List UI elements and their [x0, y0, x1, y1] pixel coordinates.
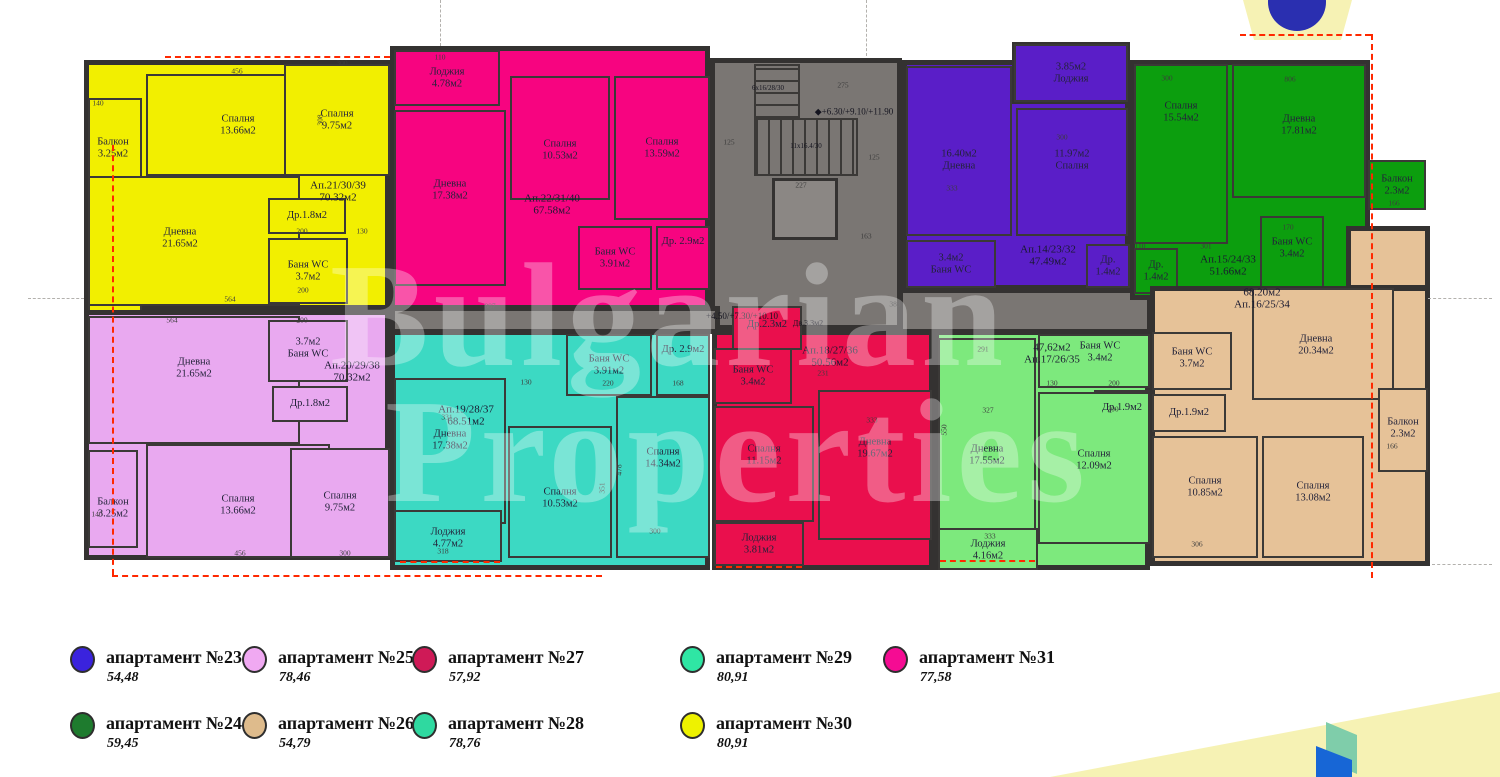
label-line: Баня WC	[288, 348, 329, 360]
label-line: 11.97м2	[1054, 148, 1089, 160]
label-line: 3.4м2	[1272, 248, 1313, 260]
label-line: Др.1.8м2	[290, 398, 330, 410]
room-label: Др. 2.9м2	[662, 236, 705, 248]
dimension-label: 300	[1161, 74, 1172, 83]
legend-apartment-name: апартамент №27	[448, 647, 584, 668]
legend-apartment-name: апартамент №25	[278, 647, 414, 668]
label-line: 12.09м2	[1076, 460, 1112, 472]
label-line: Спалня	[320, 108, 353, 120]
room-label: Баня WC3.4м2	[733, 364, 774, 388]
label-line: Балкон	[1381, 173, 1412, 185]
label-line: Спалня	[323, 490, 356, 502]
room-label: Спалня9.75м2	[320, 108, 353, 132]
label-line: Спалня	[746, 443, 781, 455]
label-line: Баня WC	[1080, 340, 1121, 352]
room-label: Баня WC3.91м2	[595, 246, 636, 270]
dimension-label: 110	[1135, 242, 1146, 251]
label-line: Спалня	[644, 136, 680, 148]
dimension-label: 275	[837, 81, 848, 90]
label-line: Дневна	[941, 160, 977, 172]
label-line: 3.4м2	[1080, 352, 1121, 364]
apartment-31-label: Ап.22/31/4067.58м2	[524, 193, 580, 218]
label-line: Др.	[1095, 254, 1120, 266]
room-label: Спалня10.53м2	[542, 138, 578, 162]
label-line: 13.66м2	[220, 125, 256, 137]
label-line: 9.75м2	[320, 120, 353, 132]
room-label: Др. 2.9м2	[662, 344, 705, 356]
room-label: Спалня12.09м2	[1076, 448, 1112, 472]
footer-yellow-triangle	[1050, 692, 1500, 777]
room-label: Лоджия4.16м2	[971, 538, 1006, 562]
label-line: 9.75м2	[323, 502, 356, 514]
construction-axis-line	[1428, 298, 1492, 299]
label-line: 2.3м2	[1381, 185, 1412, 197]
room-label: Спалня13.59м2	[644, 136, 680, 160]
label-line: Дневна	[432, 178, 468, 190]
label-line: Баня WC	[288, 259, 329, 271]
legend-color-dot	[70, 646, 95, 673]
stairwell-text: +4.50/+7.30/+10.10	[706, 311, 778, 321]
room	[818, 390, 932, 540]
boundary-red-dashed-line	[1371, 34, 1373, 578]
room-label: Дневна17.38м2	[432, 178, 468, 202]
room-label: Спалня13.66м2	[220, 113, 256, 137]
dimension-label: 318	[437, 547, 448, 556]
label-line: Спалня	[220, 493, 256, 505]
dimension-label: 550	[940, 424, 949, 435]
legend-apartment-area: 77,58	[920, 670, 952, 686]
dimension-label: 166	[1386, 442, 1397, 451]
dimension-label: 125	[868, 153, 879, 162]
boundary-red-dashed-line	[112, 575, 602, 577]
construction-axis-line	[28, 298, 84, 299]
stairwell-text: 11x16.4/30	[790, 142, 821, 150]
dimension-label: 887	[484, 302, 495, 311]
dimension-label: 140	[92, 99, 103, 108]
legend-apartment-area: 80,91	[717, 670, 749, 686]
apartment-30-label: Ап.21/30/3970.32м2	[310, 180, 366, 205]
label-line: Др.1.8м2	[287, 210, 327, 222]
room-label: Дневна21.65м2	[176, 356, 212, 380]
label-line: Спалня	[1163, 100, 1199, 112]
label-line: 17.55м2	[969, 455, 1005, 467]
room-label: Дневна17.55м2	[969, 443, 1005, 467]
dimension-label: 806	[1284, 75, 1295, 84]
label-line: 17.38м2	[432, 440, 468, 452]
label-line: 4.78м2	[430, 78, 465, 90]
label-line: Спалня	[542, 486, 578, 498]
label-line: 17.81м2	[1281, 125, 1317, 137]
label-line: Ап.16/25/34	[1234, 299, 1290, 311]
dimension-label: 300	[336, 59, 347, 68]
room-label: 3.7м2Баня WC	[288, 336, 329, 360]
label-line: 51.66м2	[1200, 266, 1256, 278]
label-line: 47.49м2	[1020, 256, 1076, 268]
room-label: Лоджия4.78м2	[430, 66, 465, 90]
label-line: Ап.17/26/35	[1024, 354, 1080, 366]
room-label: Дневна21.65м2	[162, 226, 198, 250]
dimension-label: 301	[1200, 242, 1211, 251]
boundary-red-dashed-line	[112, 145, 114, 575]
room-label: 3.4м2Баня WC	[931, 252, 972, 276]
label-line: Баня WC	[1272, 236, 1313, 248]
label-line: 3.91м2	[589, 365, 630, 377]
room-label: Баня WC3.91м2	[589, 353, 630, 377]
boundary-red-dashed-line	[716, 566, 802, 568]
label-line: Спалня	[220, 113, 256, 125]
label-line: 15.54м2	[1163, 112, 1199, 124]
dimension-label: 300	[649, 527, 660, 536]
label-line: 17.38м2	[432, 190, 468, 202]
corridor	[898, 288, 1152, 334]
label-line: Спалня	[1187, 475, 1223, 487]
label-line: Баня WC	[733, 364, 774, 376]
label-line: 10.53м2	[542, 150, 578, 162]
dimension-label: 564	[166, 316, 177, 325]
apartment-25-label: Ап.20/29/3870.32м2	[324, 360, 380, 385]
dimension-label: 200	[296, 227, 307, 236]
dimension-label: 478	[615, 464, 624, 475]
room-label: 3.85м2Лоджия	[1054, 61, 1089, 85]
dimension-label: 163	[860, 232, 871, 241]
label-line: Дневна	[969, 443, 1005, 455]
apartment-27-label: Ап.18/27/3650.56м2	[802, 345, 858, 370]
label-line: 13.59м2	[644, 148, 680, 160]
label-line: Баня WC	[589, 353, 630, 365]
label-line: Ап.18/27/36	[802, 345, 858, 357]
label-line: Дневна	[162, 226, 198, 238]
dimension-label: 220	[602, 379, 613, 388]
label-line: 3.85м2	[1054, 61, 1089, 73]
label-line: 13.08м2	[1295, 492, 1331, 504]
label-line: 3.7м2	[288, 336, 329, 348]
room-label: Спалня13.08м2	[1295, 480, 1331, 504]
label-line: Спалня	[542, 138, 578, 150]
label-line: 2.3м2	[1387, 428, 1418, 440]
stairwell-text: 6x16/28/30	[752, 84, 784, 92]
label-line: Дневна	[432, 428, 468, 440]
label-line: 14.34м2	[645, 458, 681, 470]
dimension-label: 170	[1282, 223, 1293, 232]
stair-flight	[754, 64, 800, 120]
label-line: 21.65м2	[162, 238, 198, 250]
label-line: Ап.21/30/39	[310, 180, 366, 192]
label-line: 67.58м2	[524, 205, 580, 217]
label-line: 3.4м2	[733, 376, 774, 388]
dimension-label: 130	[520, 378, 531, 387]
legend-apartment-name: апартамент №31	[919, 647, 1055, 668]
label-line: 13.66м2	[220, 505, 256, 517]
room-label: Др.1.9м2	[1169, 407, 1209, 419]
room-label: Спалня11.15м2	[746, 443, 781, 467]
legend-color-dot	[242, 646, 267, 673]
label-line: 70.32м2	[324, 372, 380, 384]
label-line: Дневна	[857, 436, 893, 448]
dimension-label: 300	[1056, 133, 1067, 142]
legend-apartment-name: апартамент №23	[106, 647, 242, 668]
room-label: Др.1.4м2	[1143, 259, 1168, 283]
room-label: 16.40м2Дневна	[941, 148, 977, 172]
dimension-label: 300	[339, 549, 350, 558]
room-label: Баня WC3.4м2	[1080, 340, 1121, 364]
boundary-red-dashed-line	[400, 561, 500, 563]
dimension-label: 456	[231, 67, 242, 76]
room-label: Дневна17.81м2	[1281, 113, 1317, 137]
legend-color-dot	[883, 646, 908, 673]
label-line: Др. 2.9м2	[662, 236, 705, 248]
stairwell-text: Дв.3.3м2	[793, 319, 823, 328]
dimension-label: 333	[946, 184, 957, 193]
label-line: Лоджия	[742, 532, 777, 544]
room	[1016, 108, 1128, 236]
dimension-label: 200	[296, 316, 307, 325]
room-label: Др.1.8м2	[287, 210, 327, 222]
label-line: 10.53м2	[542, 498, 578, 510]
room-label: Баня WC3.7м2	[288, 259, 329, 283]
label-line: 3.7м2	[288, 271, 329, 283]
site-header-decoration	[0, 0, 1500, 50]
label-line: Др. 2.9м2	[662, 344, 705, 356]
room	[938, 338, 1036, 530]
construction-axis-line	[1432, 564, 1492, 565]
site-footer-decoration	[0, 687, 1500, 777]
dimension-label: 168	[672, 379, 683, 388]
label-line: 3.7м2	[1172, 358, 1213, 370]
label-line: Баня WC	[595, 246, 636, 258]
room-label: 11.97м2Спалня	[1054, 148, 1089, 172]
dimension-label: 308	[316, 114, 325, 125]
label-line: 21.65м2	[176, 368, 212, 380]
label-line: Ап.22/31/40	[524, 193, 580, 205]
room-label: Баня WC3.7м2	[1172, 346, 1213, 370]
room-label: Спалня10.53м2	[542, 486, 578, 510]
dimension-label: 125	[723, 138, 734, 147]
label-line: 1.4м2	[1143, 271, 1168, 283]
room-label: Дневна20.34м2	[1298, 333, 1334, 357]
label-line: Баня WC	[1172, 346, 1213, 358]
dimension-label: 166	[1388, 199, 1399, 208]
legend-color-dot	[680, 646, 705, 673]
legend-apartment-area: 78,46	[279, 670, 311, 686]
label-line: 19.67м2	[857, 448, 893, 460]
room-label: Спалня13.66м2	[220, 493, 256, 517]
label-line: 3.4м2	[931, 252, 972, 264]
legend-color-dot	[412, 646, 437, 673]
room-label: Спалня14.34м2	[645, 446, 681, 470]
dimension-label: 291	[977, 345, 988, 354]
label-line: Спалня	[645, 446, 681, 458]
room-label: Спалня10.85м2	[1187, 475, 1223, 499]
apartment-29-label: 47,62м2Ап.17/26/35	[1024, 342, 1080, 367]
label-line: 50.56м2	[802, 357, 858, 369]
dimension-label: 333	[866, 416, 877, 425]
legend-apartment-name: апартамент №29	[716, 647, 852, 668]
room-label: Балкон2.3м2	[1387, 416, 1418, 440]
dimension-label: 327	[982, 406, 993, 415]
legend-apartment-area: 54,48	[107, 670, 139, 686]
dimension-label: 130	[1046, 379, 1057, 388]
room	[616, 396, 710, 558]
label-line: Спалня	[1295, 480, 1331, 492]
room-label: Др.1.4м2	[1095, 254, 1120, 278]
label-line: Спалня	[1054, 160, 1089, 172]
label-line: Баня WC	[931, 264, 972, 276]
label-line: Спалня	[1076, 448, 1112, 460]
label-line: Др.	[1143, 259, 1168, 271]
dimension-label: 200	[1108, 379, 1119, 388]
label-line: Ап.20/29/38	[324, 360, 380, 372]
label-line: 3.81м2	[742, 544, 777, 556]
room-label: Спалня9.75м2	[323, 490, 356, 514]
label-line: Лоджия	[1054, 73, 1089, 85]
label-line: Лоджия	[430, 66, 465, 78]
label-line: Дневна	[1281, 113, 1317, 125]
room-label: Дневна19.67м2	[857, 436, 893, 460]
dimension-label: 564	[224, 295, 235, 304]
room-label: Лоджия3.81м2	[742, 532, 777, 556]
room-label: Баня WC3.4м2	[1272, 236, 1313, 260]
dimension-label: 227	[795, 181, 806, 190]
boundary-red-dashed-line	[940, 560, 1035, 562]
dimension-label: 130	[356, 227, 367, 236]
label-line: 1.4м2	[1095, 266, 1120, 278]
boundary-red-dashed-line	[1240, 34, 1371, 36]
label-line: 16.40м2	[941, 148, 977, 160]
dimension-label: 456	[234, 549, 245, 558]
label-line: 3.91м2	[595, 258, 636, 270]
legend-apartment-area: 57,92	[449, 670, 481, 686]
dimension-label: 383	[889, 300, 900, 309]
dimension-label: 200	[1107, 405, 1118, 414]
apartment-26-region[interactable]	[1346, 226, 1430, 290]
boundary-red-dashed-line	[165, 56, 390, 58]
dimension-label: 331	[441, 413, 452, 422]
label-line: 68.20м2	[1234, 287, 1290, 299]
dimension-label: 200	[297, 286, 308, 295]
dimension-label: 140	[91, 510, 102, 519]
label-line: 47,62м2	[1024, 342, 1080, 354]
label-line: Др.1.9м2	[1169, 407, 1209, 419]
dimension-label: 351	[598, 482, 607, 493]
apartment-24-label: Ап.15/24/3351.66м2	[1200, 254, 1256, 279]
label-line: Балкон	[1387, 416, 1418, 428]
apartment-23-label: Ап.14/23/3247.49м2	[1020, 244, 1076, 269]
label-line: Ап.15/24/33	[1200, 254, 1256, 266]
dimension-label: 333	[984, 532, 995, 541]
label-line: Лоджия	[431, 526, 466, 538]
apartment-26-label: 68.20м2Ап.16/25/34	[1234, 287, 1290, 312]
label-line: Дневна	[1298, 333, 1334, 345]
label-line: 11.15м2	[746, 455, 781, 467]
label-line: 70.32м2	[310, 192, 366, 204]
room	[1134, 64, 1228, 244]
room-label: Спалня15.54м2	[1163, 100, 1199, 124]
room-label: Дневна17.38м2	[432, 428, 468, 452]
dimension-label: 231	[817, 369, 828, 378]
label-line: Ап.14/23/32	[1020, 244, 1076, 256]
stairwell-text: ◆+6.30/+9.10/+11.90	[815, 107, 894, 118]
room-label: Др.1.8м2	[290, 398, 330, 410]
dimension-label: 110	[435, 53, 446, 62]
label-line: 10.85м2	[1187, 487, 1223, 499]
label-line: 20.34м2	[1298, 345, 1334, 357]
label-line: Дневна	[176, 356, 212, 368]
dimension-label: 306	[1191, 540, 1202, 549]
room-label: Балкон2.3м2	[1381, 173, 1412, 197]
